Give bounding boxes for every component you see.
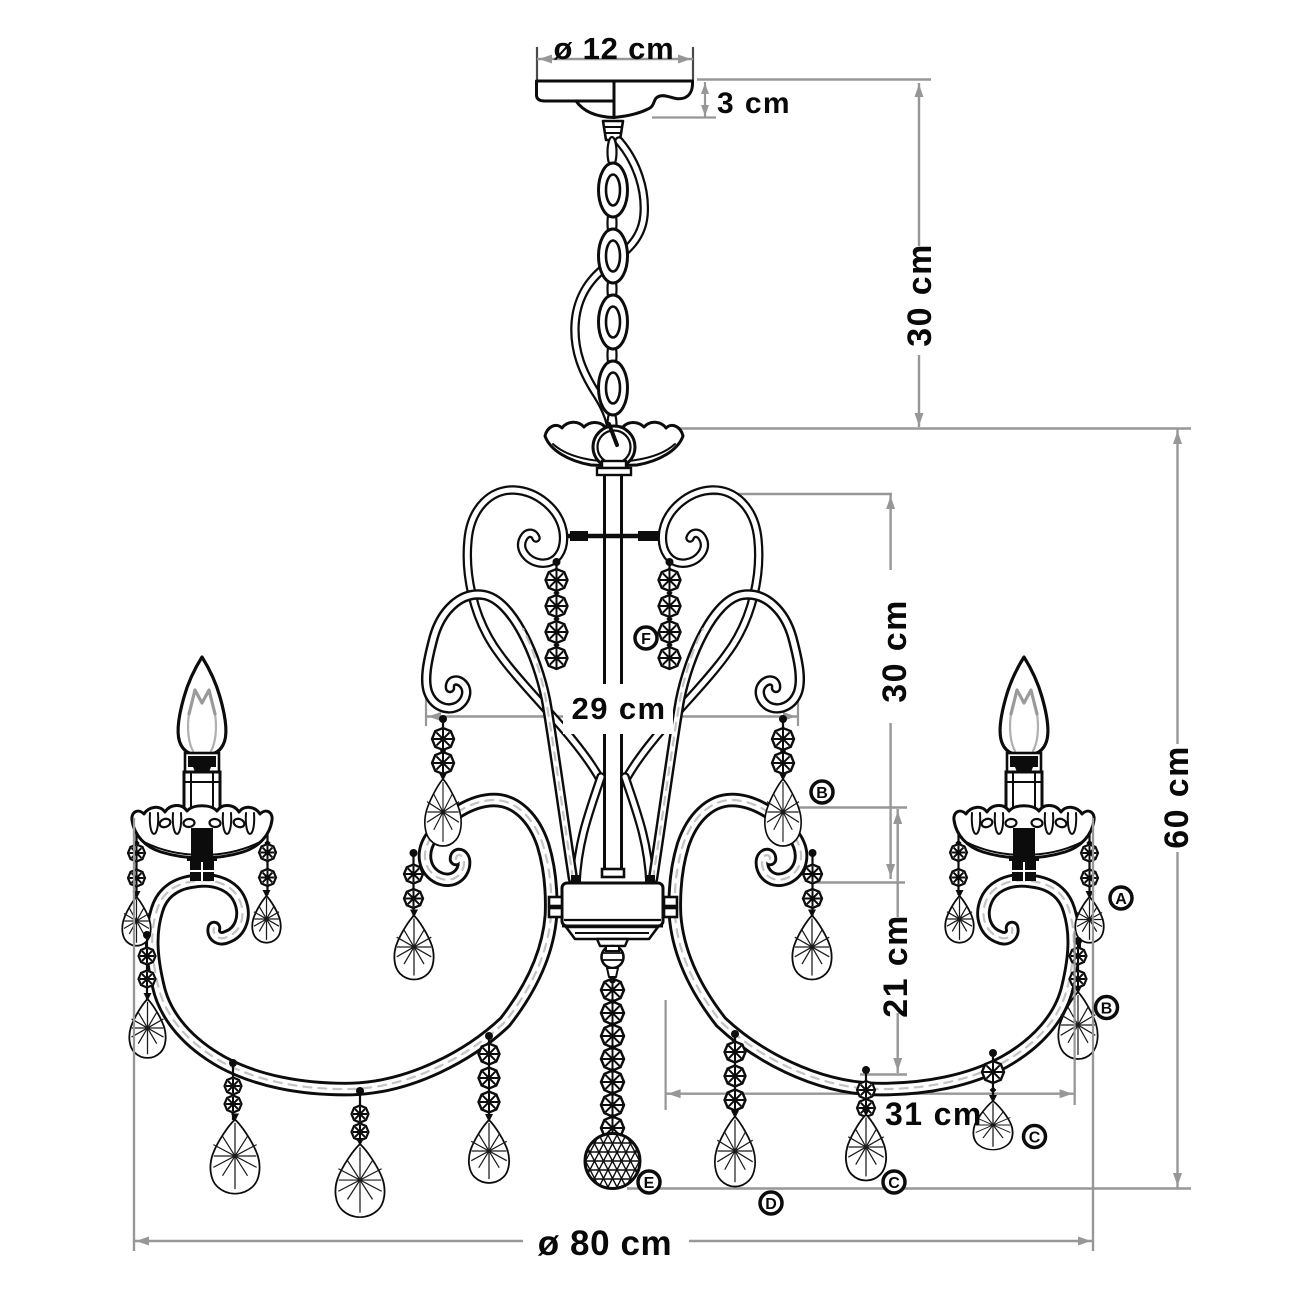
svg-text:D: D [765,1196,777,1213]
svg-text:3 cm: 3 cm [717,87,791,120]
svg-text:60 cm: 60 cm [1158,745,1196,848]
svg-text:F: F [641,631,651,648]
svg-text:31 cm: 31 cm [885,1096,983,1132]
svg-text:29 cm: 29 cm [572,691,667,726]
svg-text:A: A [1115,891,1127,908]
svg-text:E: E [644,1175,655,1192]
svg-text:ø 80 cm: ø 80 cm [538,1224,673,1263]
svg-text:ø 12 cm: ø 12 cm [553,31,674,66]
svg-text:30 cm: 30 cm [901,243,939,346]
svg-text:C: C [888,1175,900,1192]
svg-text:21 cm: 21 cm [877,914,915,1017]
svg-text:B: B [816,785,828,802]
svg-text:B: B [1101,1001,1113,1018]
svg-text:C: C [1029,1130,1041,1147]
svg-text:30 cm: 30 cm [876,599,914,702]
